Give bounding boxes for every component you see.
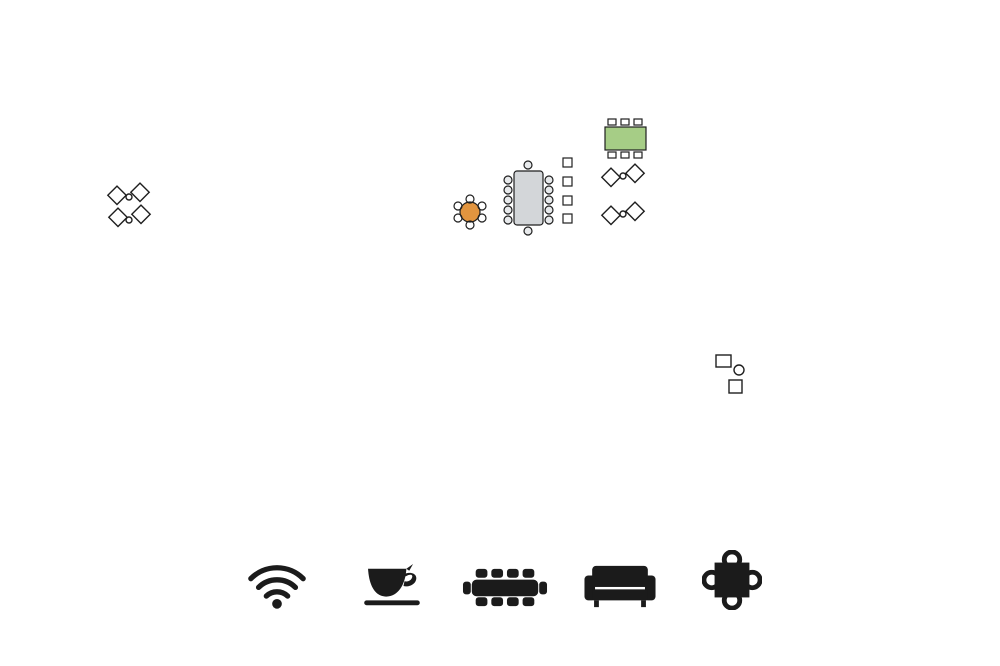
- conference-table-icon: [447, 536, 563, 610]
- wifi-icon: [219, 536, 335, 610]
- legend-item-huddle-room: [674, 484, 790, 619]
- couch-icon: [562, 536, 678, 610]
- legend-item-lounge: [562, 484, 678, 619]
- legend-circle-conference: [483, 484, 527, 528]
- legend-circle-huddle: [710, 484, 754, 528]
- coffee-cup-icon: [334, 536, 450, 610]
- legend-circle-break: [370, 484, 414, 528]
- legend-circle-wifi: [255, 484, 299, 528]
- legend-circle-lounge: [598, 484, 642, 528]
- legend-item-conference-room: [447, 484, 563, 619]
- conference-table: [504, 161, 553, 235]
- break-area-tables: [563, 119, 646, 223]
- round-table-icon: [674, 536, 790, 610]
- furniture: [108, 119, 744, 393]
- lounge-upper-chairs: [108, 183, 150, 226]
- legend-item-free-wifi: [219, 484, 335, 619]
- legend-item-break-area: [334, 484, 450, 619]
- huddle-table: [454, 195, 486, 229]
- lounge-center-chairs: [602, 164, 644, 224]
- lounge-lower-chairs: [716, 355, 744, 393]
- floor-plan-page: [0, 0, 1000, 666]
